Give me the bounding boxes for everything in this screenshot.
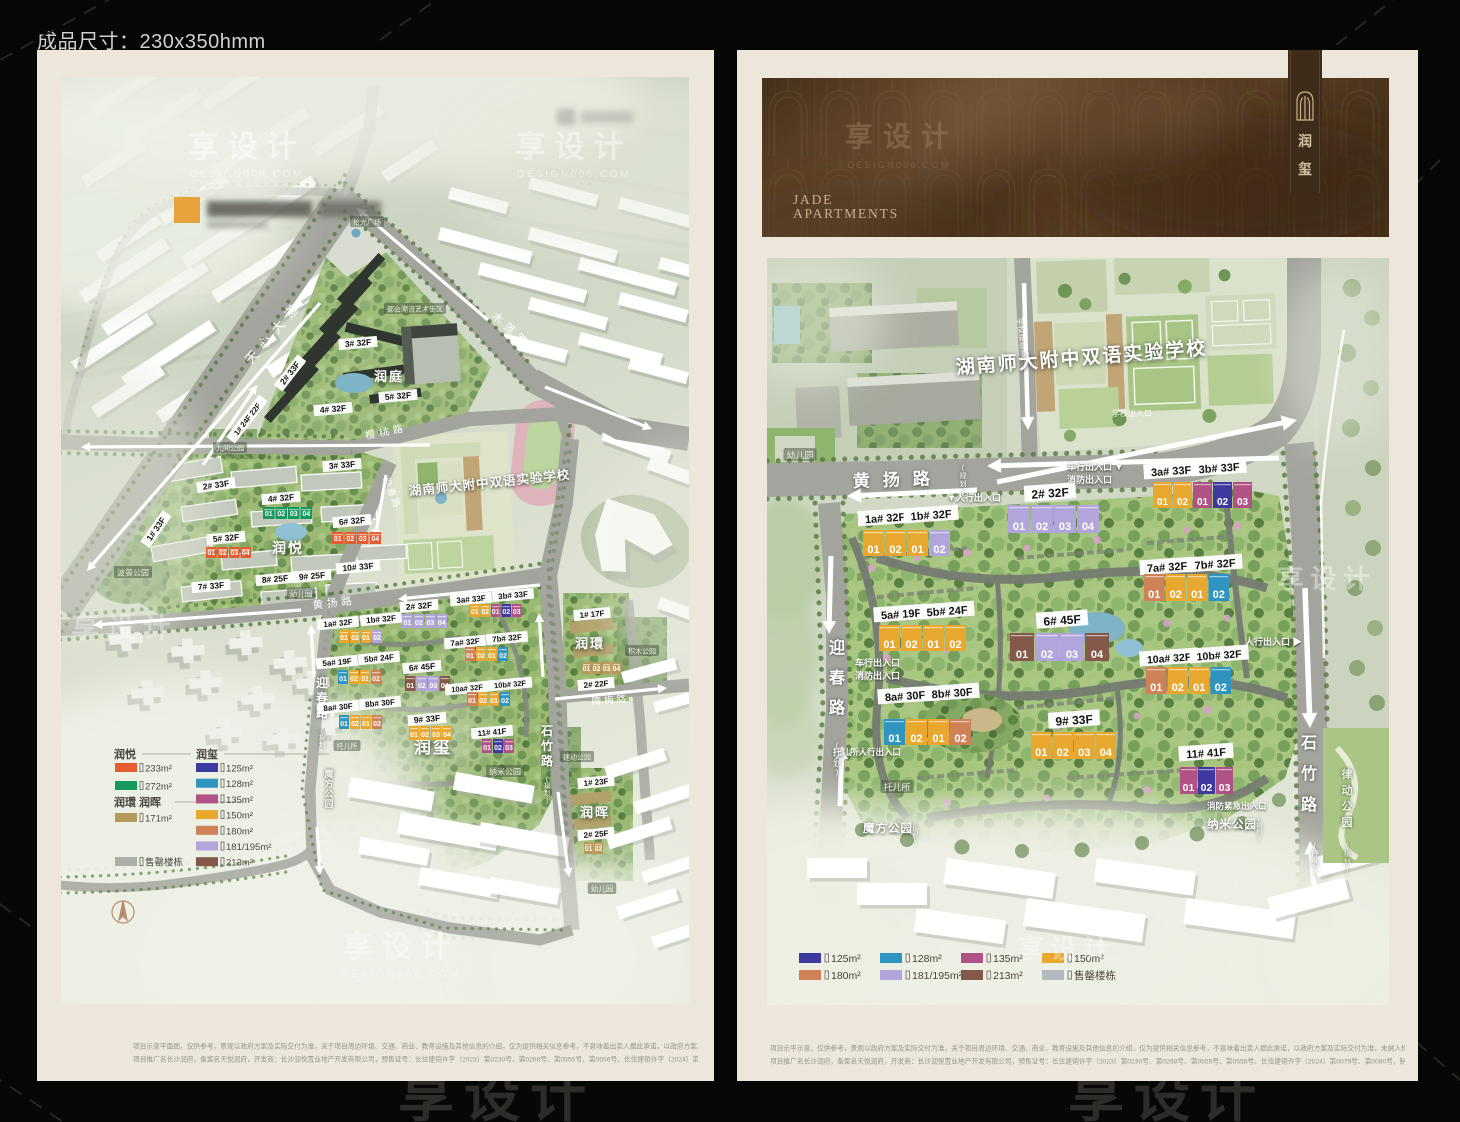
svg-text:180m²: 180m²	[226, 826, 253, 837]
svg-text:托儿所: 托儿所	[337, 742, 358, 751]
svg-text:04: 04	[1082, 521, 1095, 533]
svg-text:(: (	[321, 729, 323, 735]
svg-text:DESIGN006.COM: DESIGN006.COM	[341, 969, 461, 980]
svg-text:02: 02	[1172, 682, 1184, 694]
svg-text:公: 公	[1342, 800, 1353, 813]
svg-text:03: 03	[429, 683, 437, 690]
svg-text:02: 02	[905, 639, 917, 651]
svg-text:02: 02	[477, 653, 485, 660]
svg-text:园: 园	[324, 799, 333, 809]
svg-text:02: 02	[277, 511, 285, 518]
svg-text:享设计: 享设计	[845, 120, 959, 152]
svg-text:售罄楼栋: 售罄楼栋	[1074, 969, 1116, 982]
svg-text:建动公园: 建动公园	[563, 753, 591, 762]
svg-text:享设计: 享设计	[189, 130, 306, 164]
svg-text:01: 01	[888, 733, 900, 745]
svg-text:01: 01	[207, 550, 215, 557]
svg-text:园: 园	[1342, 816, 1353, 829]
svg-text:规: 规	[1256, 822, 1262, 830]
svg-text:01: 01	[490, 698, 498, 705]
svg-text:02: 02	[499, 653, 507, 660]
svg-text:JADE: JADE	[793, 192, 833, 207]
svg-text:划: 划	[912, 832, 918, 840]
svg-text:石: 石	[540, 724, 553, 738]
svg-text:石: 石	[1300, 735, 1317, 752]
svg-text:路: 路	[1301, 795, 1318, 814]
svg-text:04: 04	[438, 620, 446, 627]
svg-text:): )	[1314, 868, 1317, 877]
svg-text:02: 02	[373, 721, 381, 728]
svg-text:享设计: 享设计	[516, 130, 633, 164]
svg-text:润玺: 润玺	[196, 747, 218, 761]
svg-text:01: 01	[340, 721, 348, 728]
svg-text:享设计: 享设计	[1277, 564, 1376, 594]
svg-text:路: 路	[541, 753, 554, 768]
svg-text:272m²: 272m²	[145, 782, 172, 793]
svg-text:04: 04	[242, 550, 250, 557]
svg-text:润晖: 润晖	[580, 805, 610, 820]
svg-text:02: 02	[501, 698, 509, 705]
svg-text:02: 02	[933, 544, 945, 556]
svg-text:规: 规	[960, 471, 967, 480]
svg-text:171m²: 171m²	[145, 814, 172, 825]
svg-text:01: 01	[410, 732, 418, 739]
svg-text:方: 方	[324, 778, 333, 789]
svg-text:01: 01	[932, 733, 944, 745]
svg-text:02: 02	[595, 846, 603, 853]
svg-text:划: 划	[1311, 858, 1319, 868]
svg-text:01: 01	[265, 511, 273, 518]
svg-text:01: 01	[406, 683, 414, 690]
svg-text:): )	[914, 840, 916, 846]
svg-text:04: 04	[302, 511, 310, 518]
svg-text:划: 划	[319, 741, 325, 749]
svg-text:划: 划	[960, 479, 967, 488]
svg-text:04: 04	[613, 666, 621, 673]
svg-text:01: 01	[362, 721, 370, 728]
svg-text:01: 01	[1183, 782, 1195, 794]
svg-text:润環 润晖: 润環 润晖	[114, 795, 161, 809]
svg-text:春: 春	[828, 668, 846, 687]
svg-text:9# 33F: 9# 33F	[1055, 712, 1093, 729]
svg-text:02: 02	[910, 733, 922, 745]
svg-text:润悦: 润悦	[114, 747, 136, 761]
svg-text:02: 02	[481, 609, 489, 616]
svg-text:03: 03	[1066, 649, 1078, 661]
svg-text:车行出入口 ▼: 车行出入口 ▼	[1067, 461, 1123, 472]
svg-text:): )	[1346, 867, 1348, 874]
svg-text:01: 01	[468, 698, 476, 705]
svg-text:APARTMENTS: APARTMENTS	[793, 206, 899, 221]
svg-text:01: 01	[585, 846, 593, 853]
svg-text:学校出入口: 学校出入口	[1112, 408, 1152, 418]
svg-text:): )	[1258, 836, 1260, 842]
svg-text:波普公园: 波普公园	[117, 568, 149, 578]
svg-text:02: 02	[351, 721, 359, 728]
svg-text:划: 划	[833, 758, 841, 768]
svg-text:DESIGN006.COM: DESIGN006.COM	[847, 160, 950, 171]
svg-text:02: 02	[1041, 649, 1053, 661]
svg-text:02: 02	[949, 639, 961, 651]
svg-text:03: 03	[359, 536, 367, 543]
svg-text:01: 01	[583, 666, 591, 673]
svg-text:规: 规	[544, 782, 550, 790]
svg-text:幼儿园: 幼儿园	[290, 589, 313, 599]
svg-text:享设计: 享设计	[343, 930, 460, 964]
svg-text:6# 45F: 6# 45F	[1043, 612, 1081, 629]
svg-text:04: 04	[443, 732, 451, 739]
svg-text:人行出入口 ▶: 人行出入口 ▶	[1244, 636, 1302, 647]
svg-text:01: 01	[466, 653, 474, 660]
svg-text:03: 03	[426, 620, 434, 627]
svg-text:规: 规	[1311, 849, 1319, 859]
svg-text:02: 02	[479, 698, 487, 705]
svg-text:消防出入口: 消防出入口	[855, 670, 900, 681]
svg-text:03: 03	[1059, 521, 1071, 533]
svg-text:九间公园: 九间公园	[216, 444, 244, 453]
svg-text:01: 01	[883, 639, 895, 651]
svg-text:律: 律	[1341, 767, 1353, 781]
svg-text:02: 02	[494, 745, 502, 752]
svg-text:02: 02	[418, 683, 426, 690]
svg-text:01: 01	[1150, 682, 1162, 694]
svg-text:划: 划	[1344, 857, 1351, 866]
svg-text:02: 02	[1036, 521, 1048, 533]
svg-text:划: 划	[544, 789, 550, 797]
svg-text:02: 02	[346, 536, 354, 543]
svg-text:润: 润	[1298, 133, 1312, 149]
svg-text:03: 03	[1078, 747, 1090, 759]
svg-text:迎: 迎	[316, 675, 328, 690]
svg-text:03: 03	[1219, 782, 1231, 794]
svg-text:02: 02	[350, 676, 358, 683]
svg-text:玺: 玺	[1298, 161, 1312, 177]
svg-text:划: 划	[1256, 828, 1262, 836]
svg-text:竹: 竹	[540, 738, 553, 753]
svg-text:润庭: 润庭	[374, 369, 404, 384]
svg-text:128m²: 128m²	[912, 953, 942, 965]
svg-text:01: 01	[1016, 649, 1028, 661]
svg-text:规: 规	[319, 734, 325, 742]
svg-text:181/195m²: 181/195m²	[226, 842, 271, 853]
svg-text:180m²: 180m²	[831, 970, 861, 982]
svg-text:01: 01	[334, 536, 342, 543]
svg-text:02: 02	[421, 732, 429, 739]
svg-text:02: 02	[373, 635, 381, 642]
svg-text:都会潮流艺术街区: 都会潮流艺术街区	[387, 305, 443, 314]
svg-text:▼人行出入口: ▼人行出入口	[947, 492, 1001, 503]
svg-text:01: 01	[362, 635, 370, 642]
svg-text:01: 01	[1197, 497, 1209, 508]
svg-text:托儿所: 托儿所	[883, 782, 910, 793]
svg-text:02: 02	[415, 620, 423, 627]
svg-text:车行出入口: 车行出入口	[855, 657, 900, 668]
svg-text:02: 02	[502, 609, 510, 616]
svg-text:01: 01	[1035, 747, 1047, 759]
svg-text:01: 01	[483, 745, 491, 752]
svg-text:128m²: 128m²	[226, 779, 253, 790]
svg-text:181/195m²: 181/195m²	[912, 970, 963, 982]
svg-text:公: 公	[324, 789, 333, 799]
svg-text:享设计: 享设计	[1017, 934, 1116, 964]
svg-text:魔方公园: 魔方公园	[863, 821, 913, 835]
svg-text:01: 01	[1157, 497, 1169, 508]
svg-text:): )	[836, 768, 839, 777]
svg-text:(: (	[1314, 841, 1317, 850]
svg-text:02: 02	[1213, 589, 1225, 601]
svg-text:02: 02	[593, 666, 601, 673]
svg-text:02: 02	[889, 544, 901, 556]
svg-text:01: 01	[1191, 589, 1203, 601]
svg-text:03: 03	[230, 550, 238, 557]
svg-text:DESIGN006.COM: DESIGN006.COM	[517, 169, 631, 180]
svg-text:(: (	[546, 777, 548, 783]
svg-text:): )	[546, 798, 548, 804]
svg-text:03: 03	[513, 609, 521, 616]
svg-text:213m²: 213m²	[226, 858, 253, 869]
svg-text:02: 02	[1057, 747, 1069, 759]
svg-text:纳米公园: 纳米公园	[489, 767, 521, 777]
svg-text:01: 01	[1013, 521, 1025, 533]
svg-text:04: 04	[1100, 747, 1113, 759]
svg-text:02: 02	[1217, 497, 1229, 508]
svg-text:路: 路	[829, 698, 846, 717]
svg-text:04: 04	[1091, 649, 1104, 661]
svg-text:233m²: 233m²	[145, 764, 172, 775]
svg-text:售罄楼栋: 售罄楼栋	[145, 857, 184, 869]
svg-text:01: 01	[927, 639, 939, 651]
svg-text:03: 03	[1237, 497, 1249, 508]
svg-text:润悦: 润悦	[272, 540, 304, 556]
svg-text:02: 02	[954, 733, 966, 745]
svg-text:01: 01	[361, 676, 369, 683]
svg-text:125m²: 125m²	[831, 953, 861, 965]
svg-text:02: 02	[219, 550, 227, 557]
svg-text:): )	[321, 750, 323, 756]
svg-text:03: 03	[432, 732, 440, 739]
svg-text:01: 01	[403, 620, 411, 627]
svg-text:积木公园: 积木公园	[628, 647, 656, 656]
svg-text:享设计: 享设计	[71, 611, 179, 643]
svg-text:DESIGN006.COM: DESIGN006.COM	[190, 169, 304, 180]
svg-text:135m²: 135m²	[226, 795, 253, 806]
svg-text:规: 规	[912, 826, 918, 834]
svg-text:01: 01	[1148, 589, 1160, 601]
svg-text:竹: 竹	[1300, 764, 1317, 783]
svg-text:02: 02	[1177, 497, 1189, 508]
svg-text:02: 02	[1170, 589, 1182, 601]
svg-text:01: 01	[492, 609, 500, 616]
svg-text:150m²: 150m²	[226, 811, 253, 822]
svg-text:01: 01	[1193, 682, 1205, 694]
svg-text:动: 动	[1342, 783, 1353, 797]
svg-text:润環: 润環	[575, 636, 605, 651]
svg-text:03: 03	[603, 666, 611, 673]
svg-text:125m²: 125m²	[226, 764, 253, 775]
svg-text:03: 03	[505, 745, 513, 752]
svg-text:02: 02	[351, 635, 359, 642]
svg-text:黄扬路: 黄扬路	[852, 468, 943, 491]
svg-text:纳米公园: 纳米公园	[1207, 817, 1257, 831]
svg-text:01: 01	[867, 544, 879, 556]
svg-text:01: 01	[340, 635, 348, 642]
svg-text:2# 32F: 2# 32F	[1031, 485, 1069, 502]
svg-text:托儿所人行出入口: 托儿所人行出入口	[833, 747, 901, 757]
svg-text:02: 02	[372, 676, 380, 683]
svg-text:魔: 魔	[323, 768, 333, 779]
svg-text:03: 03	[290, 511, 298, 518]
svg-text:01: 01	[911, 544, 923, 556]
svg-text:04: 04	[371, 536, 379, 543]
svg-text:拾光广场: 拾光广场	[353, 218, 381, 227]
svg-text:01: 01	[339, 676, 347, 683]
svg-text:01: 01	[488, 653, 496, 660]
svg-text:规: 规	[1344, 849, 1351, 858]
svg-text:幼儿园: 幼儿园	[591, 884, 614, 894]
svg-text:消防紧急出入口: 消防紧急出入口	[1207, 801, 1267, 811]
svg-text:213m²: 213m²	[993, 970, 1023, 982]
svg-text:迎: 迎	[829, 638, 845, 657]
svg-text:02: 02	[1201, 782, 1213, 794]
svg-text:02: 02	[1215, 682, 1227, 694]
svg-text:01: 01	[471, 609, 479, 616]
